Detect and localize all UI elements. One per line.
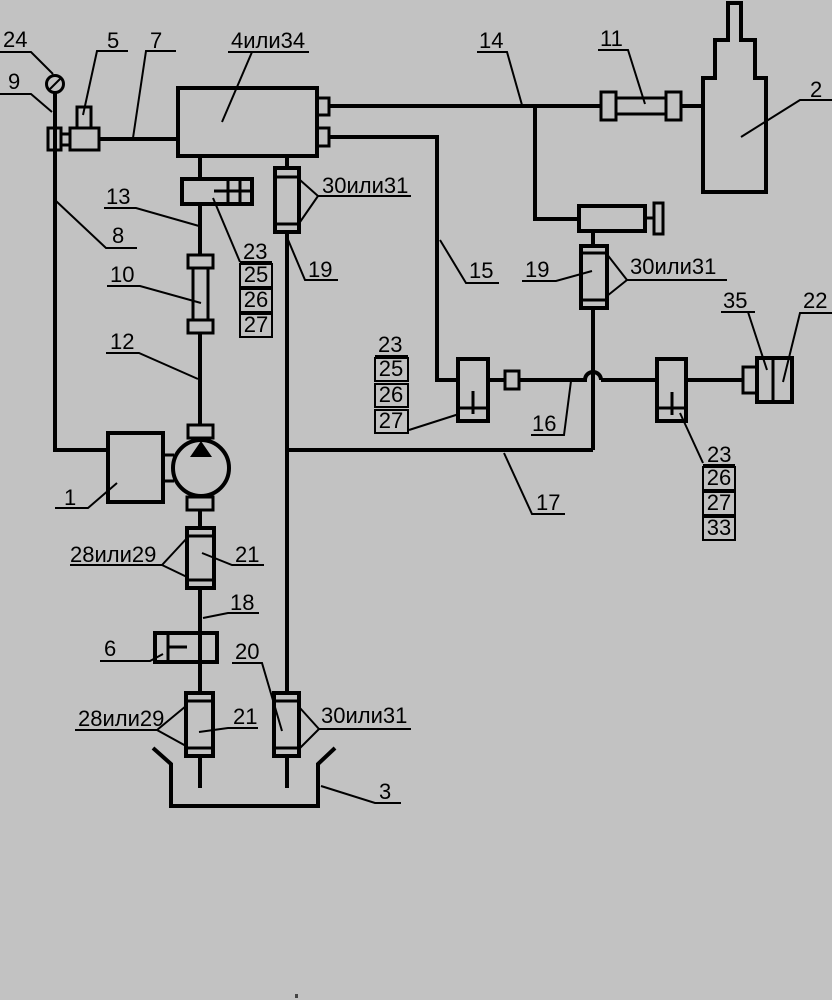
speck — [295, 994, 298, 998]
stack-b-item-1: 25 — [379, 356, 403, 381]
label-2: 2 — [810, 77, 822, 102]
stack-a-item-0: 23 — [243, 239, 267, 264]
label-30или31-lower: 30или31 — [321, 703, 407, 728]
stack-b-item-2: 26 — [379, 382, 403, 407]
label-6: 6 — [104, 636, 116, 661]
stack-c-item-1: 26 — [707, 465, 731, 490]
label-9: 9 — [8, 69, 20, 94]
stack-a-item-2: 26 — [244, 287, 268, 312]
label-30или31-right: 30или31 — [630, 254, 716, 279]
label-19-left: 19 — [308, 257, 332, 282]
label-24: 24 — [3, 27, 27, 52]
label-22: 22 — [803, 288, 827, 313]
hydraulic-schematic: 24 9 5 7 4или34 14 11 2 8 13 10 12 19 30… — [0, 0, 832, 1000]
label-7: 7 — [150, 28, 162, 53]
label-11: 11 — [600, 26, 623, 51]
stack-b-item-0: 23 — [378, 332, 402, 357]
stack-c-item-2: 27 — [707, 490, 731, 515]
label-28или29-lower: 28или29 — [78, 706, 164, 731]
label-10: 10 — [110, 262, 134, 287]
label-8: 8 — [112, 223, 124, 248]
part-stack-a: 23 25 26 27 — [240, 239, 272, 337]
label-21-upper: 21 — [235, 542, 259, 567]
stack-c-item-3: 33 — [707, 515, 731, 540]
stack-b-item-3: 27 — [379, 408, 403, 433]
label-19-right: 19 — [525, 257, 549, 282]
label-18: 18 — [230, 590, 254, 615]
label-28или29-upper: 28или29 — [70, 542, 156, 567]
stack-a-item-1: 25 — [244, 262, 268, 287]
label-20: 20 — [235, 639, 259, 664]
label-3: 3 — [379, 779, 391, 804]
label-15: 15 — [469, 258, 493, 283]
label-13: 13 — [106, 184, 130, 209]
label-21-lower: 21 — [233, 704, 257, 729]
label-12: 12 — [110, 329, 134, 354]
label-5: 5 — [107, 28, 119, 53]
label-4или34: 4или34 — [231, 28, 305, 53]
schematic-page: 24 9 5 7 4или34 14 11 2 8 13 10 12 19 30… — [0, 0, 832, 1000]
label-14: 14 — [479, 28, 503, 53]
part-stack-c: 23 26 27 33 — [703, 442, 735, 540]
label-1: 1 — [64, 485, 76, 510]
label-30или31-top: 30или31 — [322, 173, 408, 198]
label-35: 35 — [723, 288, 747, 313]
label-16: 16 — [532, 411, 556, 436]
stack-c-item-0: 23 — [707, 442, 731, 467]
label-17: 17 — [536, 490, 560, 515]
stack-a-item-3: 27 — [244, 312, 268, 337]
